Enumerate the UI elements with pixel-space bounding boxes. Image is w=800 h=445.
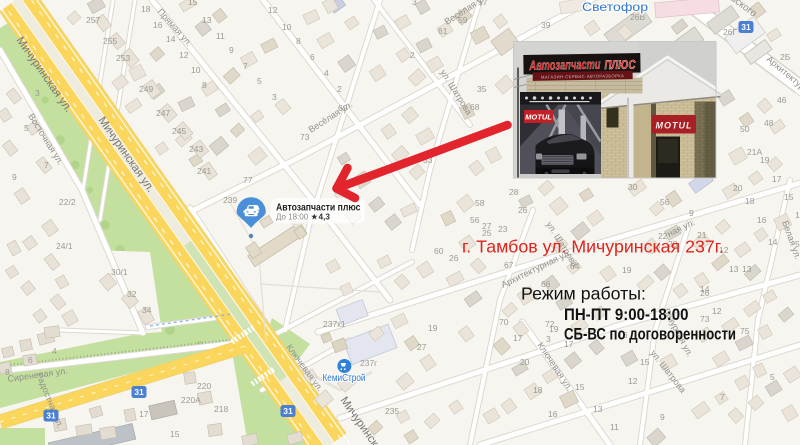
svg-text:12: 12 <box>712 306 722 316</box>
svg-text:19: 19 <box>549 324 559 334</box>
svg-text:56: 56 <box>660 197 670 207</box>
svg-text:257: 257 <box>86 15 100 25</box>
svg-text:15: 15 <box>170 429 180 439</box>
svg-text:220: 220 <box>197 381 211 391</box>
svg-text:9: 9 <box>660 412 665 422</box>
svg-text:16: 16 <box>153 20 163 30</box>
svg-text:4,3: 4,3 <box>319 213 331 222</box>
svg-text:5: 5 <box>257 76 262 86</box>
svg-text:СБ-ВС по договоренности: СБ-ВС по договоренности <box>564 325 736 344</box>
svg-text:16: 16 <box>548 409 558 419</box>
svg-text:67: 67 <box>504 260 514 270</box>
svg-text:48: 48 <box>764 118 774 128</box>
svg-text:8: 8 <box>202 80 207 90</box>
svg-text:MOTUL: MOTUL <box>656 121 693 131</box>
svg-text:218: 218 <box>214 404 228 414</box>
svg-text:4: 4 <box>324 68 329 78</box>
svg-text:31: 31 <box>283 406 293 416</box>
svg-text:7: 7 <box>243 61 248 71</box>
svg-text:10: 10 <box>282 22 292 32</box>
svg-text:28: 28 <box>509 187 519 197</box>
svg-text:3: 3 <box>272 92 277 102</box>
svg-text:30/1: 30/1 <box>111 267 128 277</box>
svg-text:247: 247 <box>156 108 170 118</box>
svg-text:243: 243 <box>189 144 203 154</box>
svg-text:2: 2 <box>337 84 342 94</box>
svg-text:11: 11 <box>216 31 225 41</box>
svg-text:19: 19 <box>622 265 632 275</box>
svg-text:26: 26 <box>449 253 459 263</box>
svg-text:61: 61 <box>438 26 448 36</box>
svg-text:MOTUL: MOTUL <box>525 113 552 122</box>
svg-text:22/2: 22/2 <box>59 197 76 207</box>
svg-text:255: 255 <box>103 36 117 46</box>
svg-text:10: 10 <box>191 65 201 75</box>
svg-text:39: 39 <box>541 20 551 30</box>
svg-text:239: 239 <box>223 195 237 205</box>
svg-text:13: 13 <box>742 264 752 274</box>
svg-text:15: 15 <box>188 0 198 7</box>
svg-text:7: 7 <box>720 392 725 402</box>
svg-text:237к1: 237к1 <box>323 319 346 329</box>
svg-text:13: 13 <box>729 264 739 274</box>
svg-text:26: 26 <box>518 205 528 215</box>
svg-text:9: 9 <box>229 45 234 55</box>
svg-text:17: 17 <box>139 409 149 419</box>
svg-text:4: 4 <box>52 346 57 356</box>
svg-text:24/1: 24/1 <box>56 241 73 251</box>
svg-text:15: 15 <box>784 192 794 202</box>
svg-text:5: 5 <box>770 372 775 382</box>
svg-text:27: 27 <box>417 342 427 352</box>
svg-text:14: 14 <box>768 237 778 247</box>
svg-text:18: 18 <box>141 4 151 14</box>
svg-text:249: 249 <box>139 84 153 94</box>
svg-text:73: 73 <box>700 314 710 324</box>
svg-text:6: 6 <box>310 52 315 62</box>
svg-text:5: 5 <box>24 123 29 133</box>
svg-text:Режим работы:: Режим работы: <box>521 284 646 304</box>
svg-text:235: 235 <box>385 406 399 416</box>
svg-text:73: 73 <box>300 132 310 142</box>
svg-text:3: 3 <box>546 334 551 344</box>
svg-text:2: 2 <box>410 50 415 60</box>
svg-text:20: 20 <box>733 183 743 193</box>
svg-text:12: 12 <box>268 5 278 15</box>
svg-text:70: 70 <box>499 317 509 327</box>
svg-text:20: 20 <box>520 357 530 367</box>
svg-text:23: 23 <box>498 224 508 234</box>
svg-text:46: 46 <box>777 95 787 105</box>
svg-text:32: 32 <box>127 289 137 299</box>
svg-text:35: 35 <box>477 84 487 94</box>
svg-text:Автозапчасти: Автозапчасти <box>529 57 601 73</box>
svg-text:3: 3 <box>412 0 417 7</box>
svg-text:19: 19 <box>760 155 770 165</box>
svg-text:26: 26 <box>700 288 710 298</box>
svg-text:ПН-ПТ 9:00-18:00: ПН-ПТ 9:00-18:00 <box>564 305 689 324</box>
svg-text:ПЛЮС: ПЛЮС <box>604 58 636 73</box>
svg-text:19: 19 <box>428 323 438 333</box>
svg-text:3: 3 <box>35 88 40 98</box>
svg-text:31: 31 <box>134 387 144 397</box>
svg-text:18: 18 <box>745 196 755 206</box>
svg-text:14: 14 <box>166 34 176 44</box>
svg-text:60: 60 <box>434 246 444 256</box>
svg-text:220А: 220А <box>181 395 201 405</box>
svg-text:253: 253 <box>116 53 130 63</box>
svg-text:50: 50 <box>740 124 750 134</box>
svg-text:56: 56 <box>470 215 480 225</box>
svg-text:Светофор: Светофор <box>582 0 648 14</box>
svg-text:17: 17 <box>513 333 523 343</box>
svg-text:26Г: 26Г <box>723 27 737 37</box>
svg-text:8: 8 <box>296 36 301 46</box>
svg-text:34: 34 <box>142 305 152 315</box>
svg-text:★: ★ <box>311 212 319 222</box>
svg-text:6: 6 <box>28 355 33 365</box>
svg-text:13: 13 <box>593 404 603 414</box>
svg-text:10: 10 <box>795 210 800 220</box>
svg-text:18: 18 <box>533 385 543 395</box>
svg-text:58: 58 <box>475 198 485 208</box>
svg-text:31: 31 <box>46 411 56 421</box>
svg-text:13: 13 <box>202 15 212 25</box>
svg-text:КемиСтрой: КемиСтрой <box>323 372 366 384</box>
svg-text:30: 30 <box>628 182 638 192</box>
svg-text:7: 7 <box>44 160 49 170</box>
svg-text:15: 15 <box>640 357 650 367</box>
svg-text:До 18:00: До 18:00 <box>276 213 309 222</box>
svg-text:77: 77 <box>243 175 253 185</box>
svg-text:17: 17 <box>772 174 782 184</box>
svg-text:9: 9 <box>12 172 17 182</box>
svg-text:2Б: 2Б <box>780 52 791 62</box>
svg-text:75: 75 <box>740 326 750 336</box>
svg-text:г. Тамбов ул. Мичуринская 237г: г. Тамбов ул. Мичуринская 237г. <box>462 237 724 257</box>
svg-text:11: 11 <box>610 422 619 432</box>
svg-text:12: 12 <box>628 376 638 386</box>
svg-text:245: 245 <box>172 126 186 136</box>
svg-text:15: 15 <box>575 382 585 392</box>
svg-text:31: 31 <box>741 22 751 32</box>
svg-text:12: 12 <box>179 50 189 60</box>
svg-text:237г: 237г <box>360 358 377 368</box>
svg-text:241: 241 <box>197 166 211 176</box>
svg-text:16: 16 <box>757 215 767 225</box>
